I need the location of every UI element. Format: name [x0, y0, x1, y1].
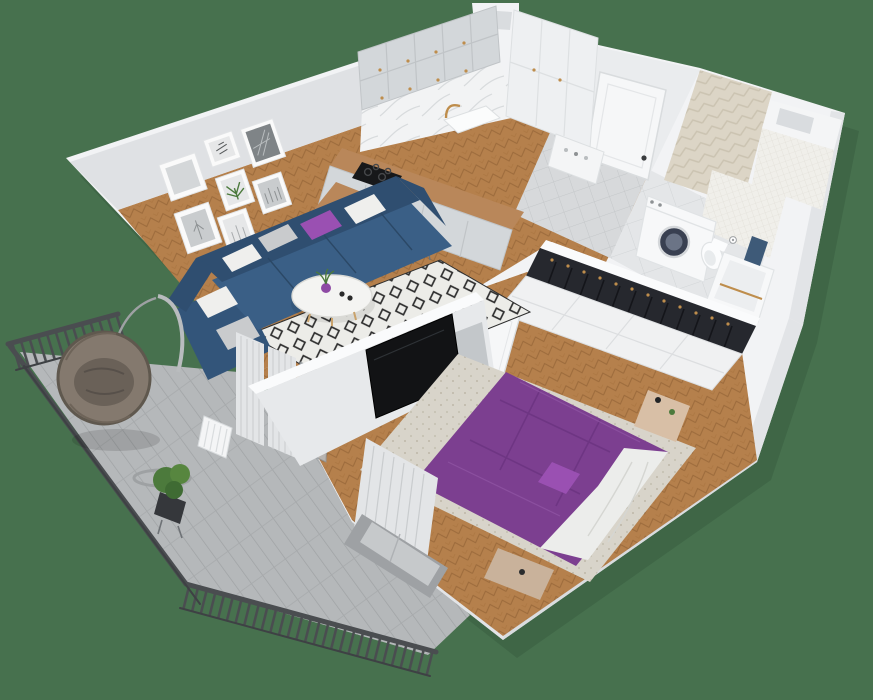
nightstand-lamp	[655, 397, 661, 403]
toilet-paper-holder	[730, 237, 737, 244]
purple-vase	[321, 283, 331, 293]
nightstand-plant	[669, 409, 675, 415]
chair-cushion	[74, 358, 134, 406]
hanging-egg-chair	[58, 332, 150, 424]
coffee-table-top	[292, 275, 372, 317]
front-door-handle	[641, 155, 646, 160]
render-stage	[0, 0, 873, 700]
apartment-isometric-render	[0, 0, 873, 700]
